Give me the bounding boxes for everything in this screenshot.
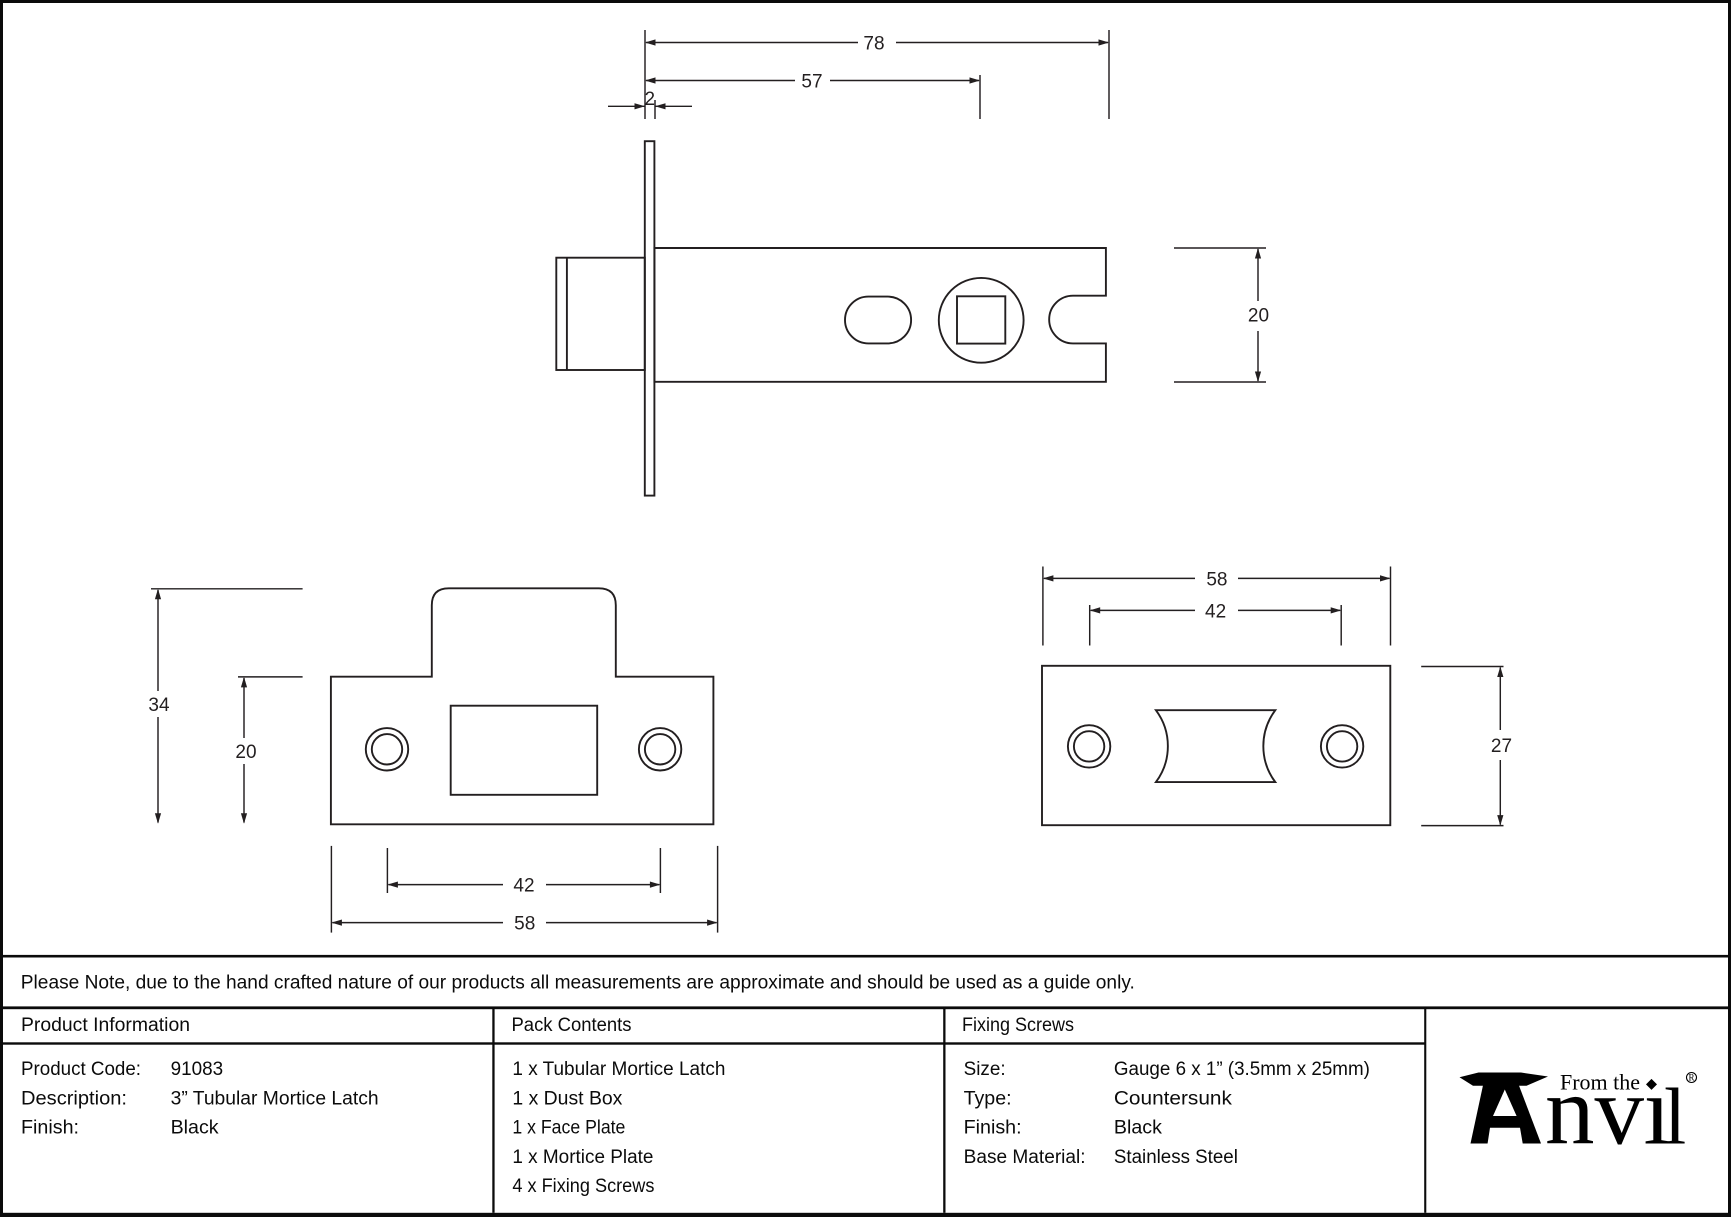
svg-text:Gauge 6 x 1” (3.5mm x 25mm): Gauge 6 x 1” (3.5mm x 25mm) [1114, 1059, 1370, 1080]
svg-text:Base Material:: Base Material: [964, 1147, 1086, 1168]
svg-text:Finish:: Finish: [964, 1118, 1022, 1139]
svg-text:Black: Black [171, 1118, 220, 1139]
svg-text:Countersunk: Countersunk [1114, 1088, 1233, 1109]
svg-text:Pack Contents: Pack Contents [512, 1015, 632, 1036]
svg-text:Please Note, due to the hand c: Please Note, due to the hand crafted nat… [21, 973, 1135, 994]
svg-text:1 x Dust Box: 1 x Dust Box [512, 1088, 623, 1109]
svg-text:Black: Black [1114, 1118, 1163, 1139]
svg-text:R: R [1688, 1073, 1694, 1083]
svg-text:Type:: Type: [964, 1088, 1012, 1109]
svg-text:3” Tubular Mortice Latch: 3” Tubular Mortice Latch [171, 1088, 379, 1109]
svg-text:Product Code:: Product Code: [21, 1059, 141, 1080]
svg-text:1 x Face Plate: 1 x Face Plate [512, 1118, 625, 1139]
svg-text:Product Information: Product Information [21, 1015, 190, 1036]
svg-text:78: 78 [863, 34, 884, 55]
svg-text:1 x Tubular Mortice Latch: 1 x Tubular Mortice Latch [512, 1059, 725, 1080]
svg-text:57: 57 [801, 71, 822, 92]
svg-text:1 x Mortice Plate: 1 x Mortice Plate [512, 1147, 653, 1168]
svg-text:4 x Fixing Screws: 4 x Fixing Screws [512, 1176, 654, 1197]
svg-text:58: 58 [1206, 569, 1227, 590]
svg-text:Finish:: Finish: [21, 1118, 79, 1139]
svg-text:Stainless Steel: Stainless Steel [1114, 1147, 1238, 1168]
svg-text:27: 27 [1491, 736, 1512, 757]
svg-text:2: 2 [645, 89, 656, 110]
svg-text:34: 34 [148, 695, 170, 716]
svg-text:42: 42 [513, 876, 534, 897]
svg-text:l: l [1664, 1074, 1686, 1162]
svg-text:Description:: Description: [21, 1088, 127, 1109]
svg-text:20: 20 [1248, 305, 1269, 326]
svg-text:nv: nv [1545, 1057, 1645, 1166]
svg-text:Fixing Screws: Fixing Screws [962, 1015, 1074, 1036]
svg-text:20: 20 [235, 742, 256, 763]
svg-text:58: 58 [514, 914, 535, 935]
svg-text:Size:: Size: [964, 1059, 1006, 1080]
svg-text:42: 42 [1205, 601, 1226, 622]
svg-text:91083: 91083 [171, 1059, 224, 1080]
